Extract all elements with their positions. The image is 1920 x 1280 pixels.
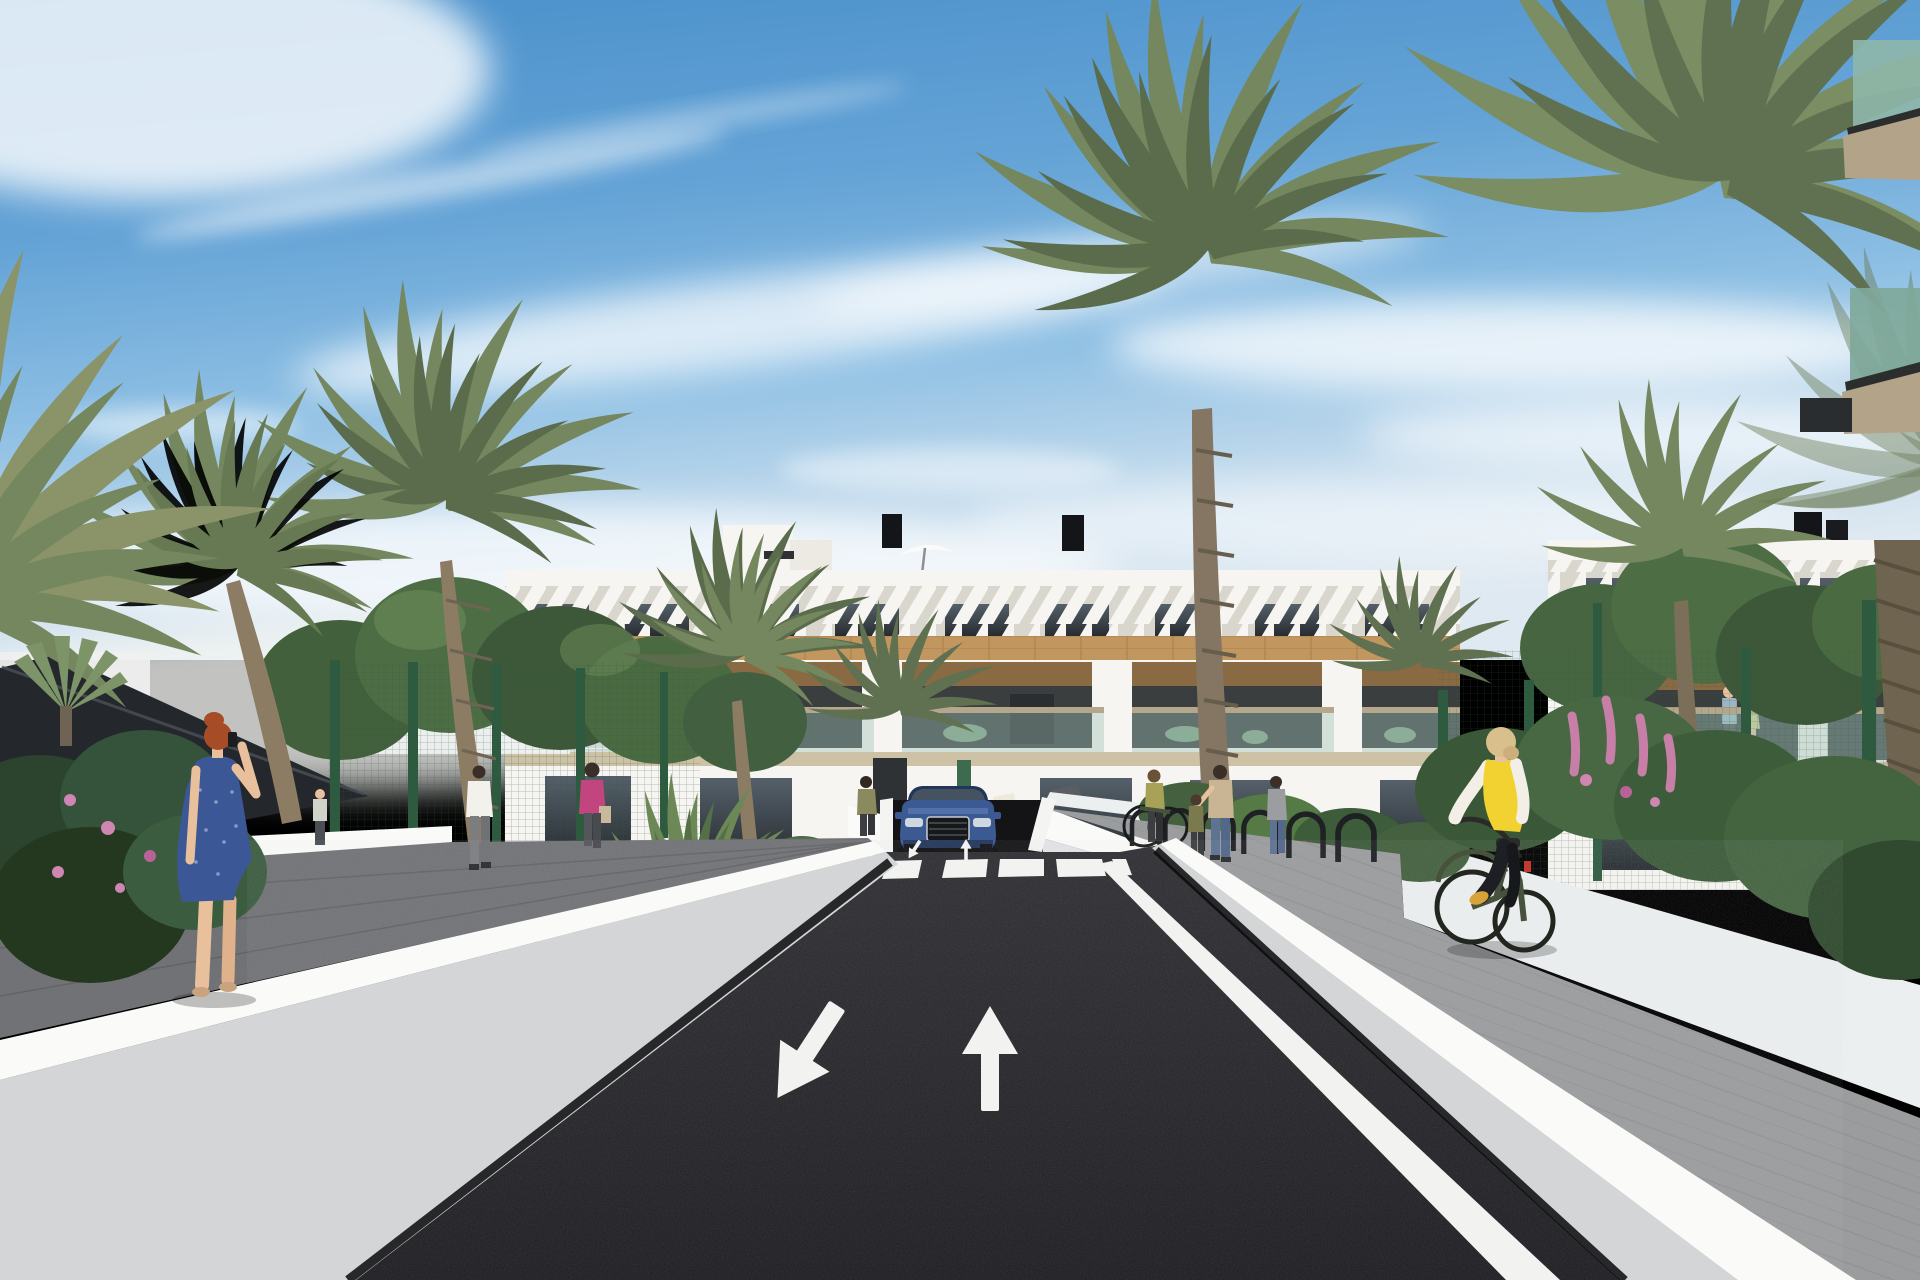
phone: [228, 732, 237, 747]
scene-illustration: [0, 0, 1920, 1280]
hood-highlight: [908, 808, 988, 814]
render-viewport: [0, 0, 1920, 1280]
green-glass-balcony: [1843, 40, 1920, 180]
chimney-icon: [882, 514, 902, 548]
windshield: [911, 789, 985, 800]
suv-car: [895, 786, 1001, 857]
headlight: [973, 818, 991, 827]
chimney-icon: [1062, 515, 1084, 551]
louver-fins: [505, 586, 1460, 638]
reflector: [1524, 861, 1531, 872]
headlight: [905, 818, 923, 827]
mesh-fence-left: [328, 660, 700, 848]
